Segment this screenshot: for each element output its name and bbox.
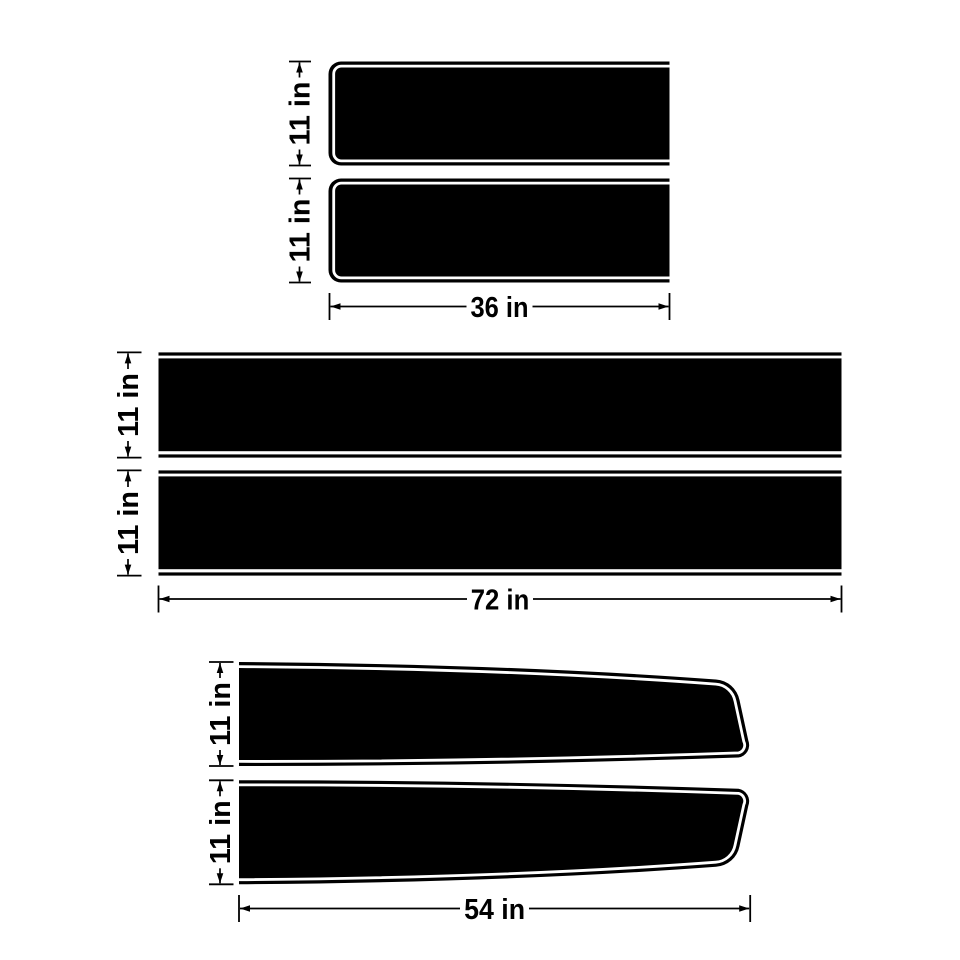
svg-text:11 in: 11 in — [113, 373, 145, 437]
svg-text:11 in: 11 in — [285, 199, 317, 263]
svg-text:11 in: 11 in — [205, 682, 237, 746]
svg-text:11 in: 11 in — [285, 82, 317, 146]
svg-text:72 in: 72 in — [471, 584, 530, 616]
svg-text:11 in: 11 in — [205, 800, 237, 864]
svg-text:36 in: 36 in — [471, 292, 529, 324]
svg-text:11 in: 11 in — [113, 491, 145, 555]
svg-text:54 in: 54 in — [464, 894, 525, 926]
